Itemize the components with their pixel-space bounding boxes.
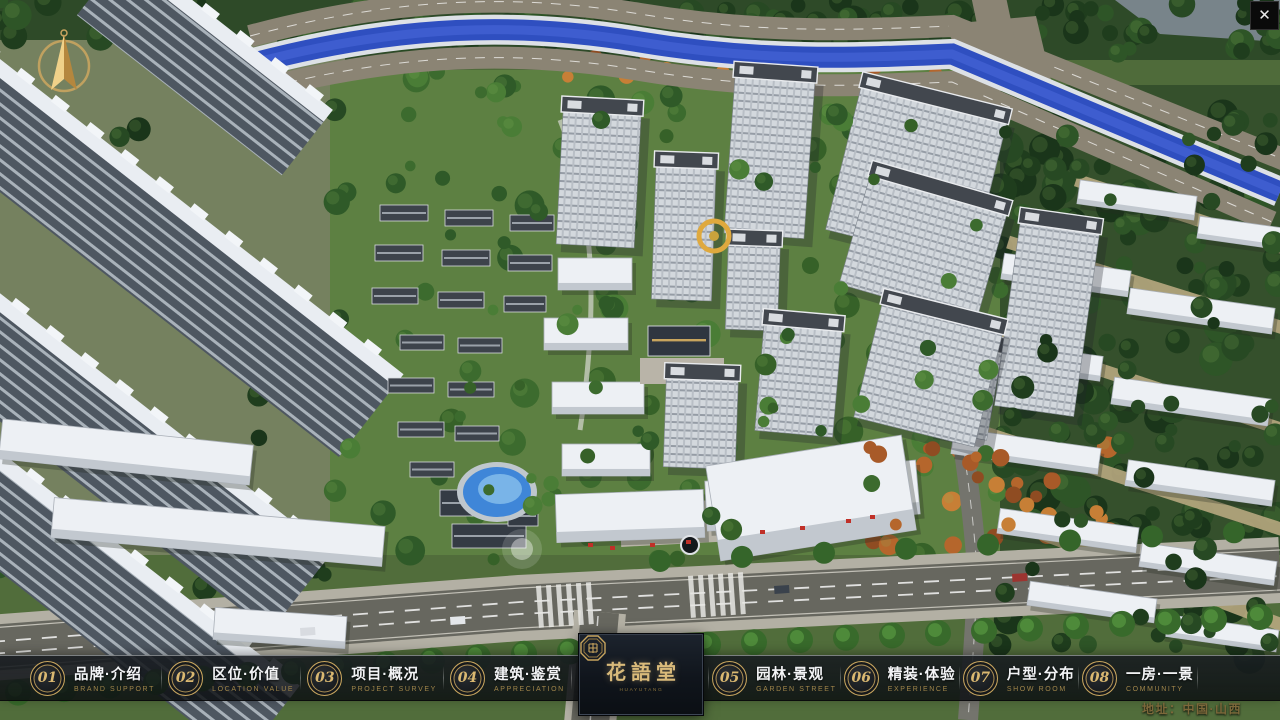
- close-button[interactable]: ✕: [1250, 1, 1279, 30]
- nav-divider: [708, 666, 709, 690]
- nav-label-zh: 一房·一景: [1126, 663, 1194, 684]
- nav-label-zh: 精装·体验: [888, 663, 956, 684]
- site-plan-3d-map[interactable]: [0, 0, 1280, 720]
- project-tagline: HUAYUTANG: [619, 688, 663, 693]
- nav-label-en: LOCATION VALUE: [212, 686, 294, 693]
- nav-badge-icon: 04: [450, 661, 485, 696]
- nav-item-8-community[interactable]: 08 一房·一景 COMMUNITY: [1082, 661, 1194, 696]
- nav-badge-icon: 05: [712, 661, 747, 696]
- nav-label-en: COMMUNITY: [1126, 686, 1184, 693]
- nav-label-zh: 品牌·介绍: [74, 663, 142, 684]
- sales-presentation-window: ✕ 01 品牌·介绍 BRAND SUPPORT 02 区位·价值 LOCATI…: [0, 0, 1280, 720]
- logo-seal-icon: [580, 635, 606, 661]
- nav-label-en: GARDEN STREET: [756, 686, 836, 693]
- nav-badge-icon: 06: [844, 661, 879, 696]
- nav-label-zh: 项目·概况: [351, 663, 419, 684]
- nav-item-2-location[interactable]: 02 区位·价值 LOCATION VALUE: [168, 661, 294, 696]
- nav-label-en: BRAND SUPPORT: [74, 686, 155, 693]
- nav-item-5-garden[interactable]: 05 园林·景观 GARDEN STREET: [712, 661, 836, 696]
- nav-badge-icon: 01: [30, 661, 65, 696]
- nav-item-7-floorplan[interactable]: 07 户型·分布 SHOW ROOM: [963, 661, 1075, 696]
- project-logo-panel: 花語堂 HUAYUTANG: [579, 634, 703, 715]
- nav-divider: [571, 666, 572, 690]
- nav-divider: [1197, 666, 1198, 690]
- nav-badge-icon: 03: [307, 661, 342, 696]
- nav-divider: [959, 666, 960, 690]
- nav-label-zh: 户型·分布: [1007, 663, 1075, 684]
- nav-label-zh: 建筑·鉴赏: [494, 663, 562, 684]
- nav-divider: [443, 666, 444, 690]
- nav-label-en: PROJECT SURVEY: [351, 686, 437, 693]
- project-name: 花語堂: [601, 656, 681, 685]
- nav-label-en: APPRECIATION: [494, 686, 565, 693]
- nav-label-en: EXPERIENCE: [888, 686, 949, 693]
- nav-item-1-brand[interactable]: 01 品牌·介绍 BRAND SUPPORT: [30, 661, 155, 696]
- nav-label-zh: 园林·景观: [756, 663, 824, 684]
- nav-divider: [840, 666, 841, 690]
- nav-label-en: SHOW ROOM: [1007, 686, 1067, 693]
- nav-label-zh: 区位·价值: [212, 663, 280, 684]
- nav-badge-icon: 02: [168, 661, 203, 696]
- nav-item-3-project[interactable]: 03 项目·概况 PROJECT SURVEY: [307, 661, 437, 696]
- project-address: 地址：中国·山西: [1142, 700, 1242, 717]
- nav-group-right: 05 园林·景观 GARDEN STREET 06 精装·体验 EXPERIEN…: [708, 656, 1198, 700]
- nav-item-6-interior[interactable]: 06 精装·体验 EXPERIENCE: [844, 661, 956, 696]
- nav-divider: [161, 666, 162, 690]
- nav-group-left: 01 品牌·介绍 BRAND SUPPORT 02 区位·价值 LOCATION…: [30, 656, 572, 700]
- nav-badge-icon: 07: [963, 661, 998, 696]
- nav-divider: [300, 666, 301, 690]
- nav-badge-icon: 08: [1082, 661, 1117, 696]
- nav-divider: [1078, 666, 1079, 690]
- nav-item-4-architecture[interactable]: 04 建筑·鉴赏 APPRECIATION: [450, 661, 565, 696]
